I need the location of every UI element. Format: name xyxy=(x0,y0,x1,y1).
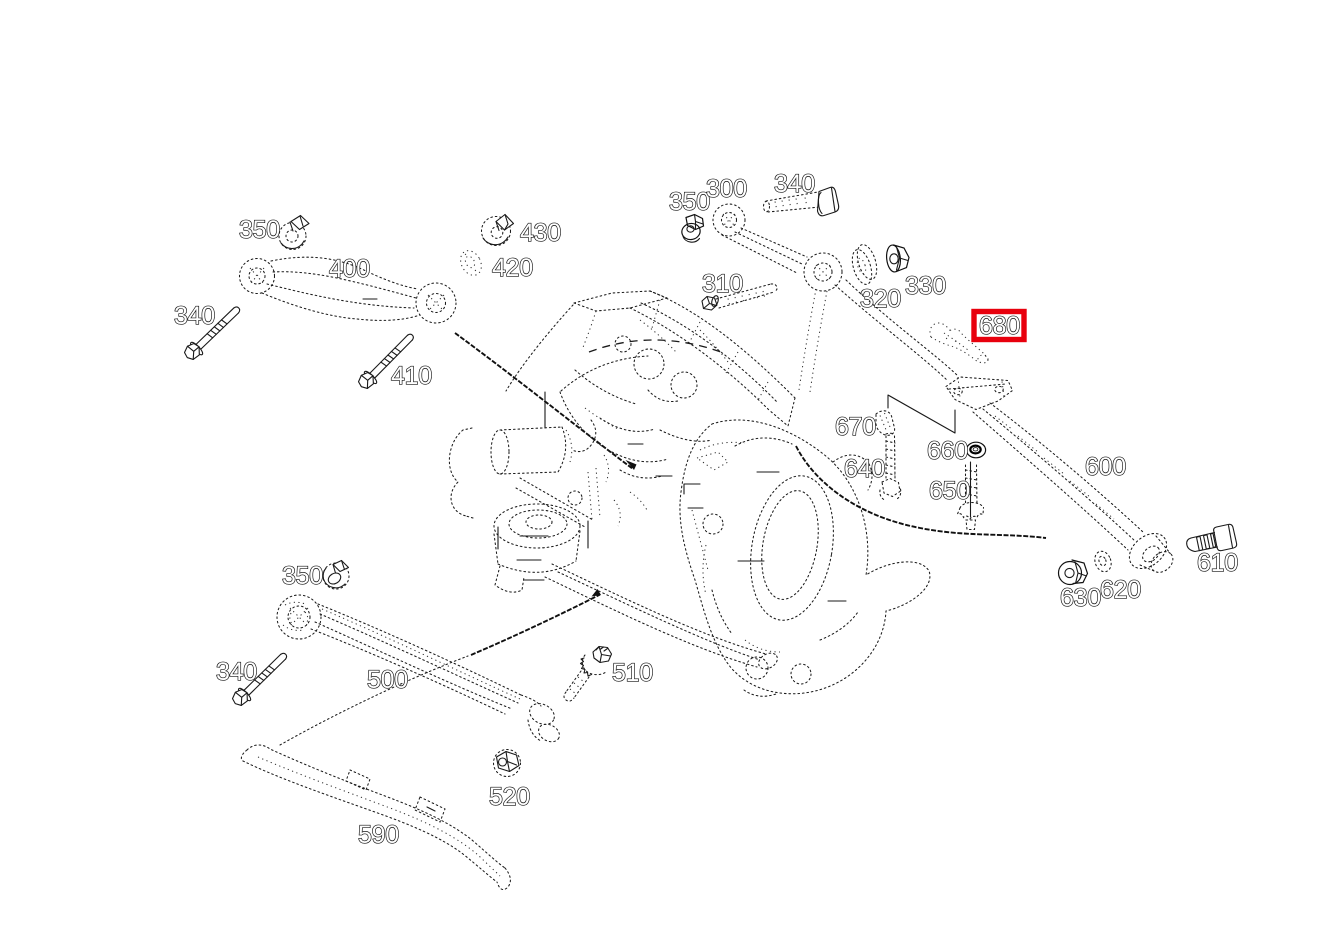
svg-text:670: 670 xyxy=(835,413,876,441)
svg-text:340: 340 xyxy=(174,302,215,330)
svg-text:330: 330 xyxy=(905,272,946,300)
svg-text:520: 520 xyxy=(489,783,530,811)
svg-text:510: 510 xyxy=(612,659,653,687)
svg-text:350: 350 xyxy=(239,216,280,244)
svg-text:640: 640 xyxy=(844,455,885,483)
svg-text:660: 660 xyxy=(927,437,968,465)
svg-text:420: 420 xyxy=(492,254,533,282)
svg-text:590: 590 xyxy=(358,821,399,849)
svg-text:500: 500 xyxy=(367,666,408,694)
svg-text:400: 400 xyxy=(329,255,370,283)
svg-text:620: 620 xyxy=(1100,576,1141,604)
svg-text:340: 340 xyxy=(216,658,257,686)
svg-text:430: 430 xyxy=(520,219,561,247)
svg-text:630: 630 xyxy=(1060,584,1101,612)
svg-text:350: 350 xyxy=(282,562,323,590)
svg-text:300: 300 xyxy=(706,175,747,203)
svg-text:310: 310 xyxy=(702,270,743,298)
svg-text:680: 680 xyxy=(979,312,1020,340)
svg-text:610: 610 xyxy=(1197,549,1238,577)
svg-text:600: 600 xyxy=(1085,453,1126,481)
svg-text:650: 650 xyxy=(929,477,970,505)
svg-text:340: 340 xyxy=(774,170,815,198)
svg-text:350: 350 xyxy=(669,188,710,216)
svg-text:320: 320 xyxy=(860,285,901,313)
svg-text:410: 410 xyxy=(391,362,432,390)
